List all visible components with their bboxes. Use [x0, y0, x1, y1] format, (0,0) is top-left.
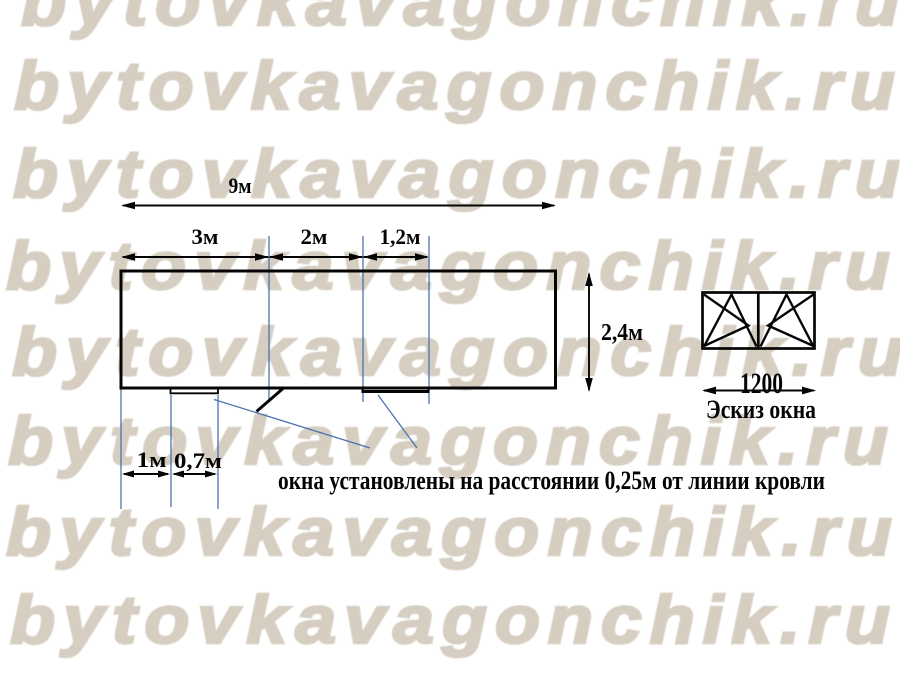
svg-text:2м: 2м	[301, 224, 328, 249]
svg-text:3м: 3м	[192, 224, 219, 249]
svg-text:окна установлены на расстоянии: окна установлены на расстоянии 0,25м от …	[278, 466, 825, 495]
svg-text:bytovkavagonchik.ru: bytovkavagonchik.ru	[6, 495, 892, 571]
svg-text:0,7м: 0,7м	[174, 448, 222, 473]
svg-text:Эскиз окна: Эскиз окна	[706, 395, 816, 424]
svg-text:2,4м: 2,4м	[601, 320, 643, 346]
svg-text:bytovkavagonchik.ru: bytovkavagonchik.ru	[10, 583, 890, 659]
svg-text:1,2м: 1,2м	[380, 224, 421, 249]
svg-text:9м: 9м	[229, 173, 252, 198]
svg-text:bytovkavagonchik.ru: bytovkavagonchik.ru	[14, 49, 895, 125]
svg-text:bytovkavagonchik.ru: bytovkavagonchik.ru	[21, 0, 900, 40]
svg-text:1м: 1м	[137, 447, 167, 472]
svg-text:bytovkavagonchik.ru: bytovkavagonchik.ru	[13, 137, 900, 213]
